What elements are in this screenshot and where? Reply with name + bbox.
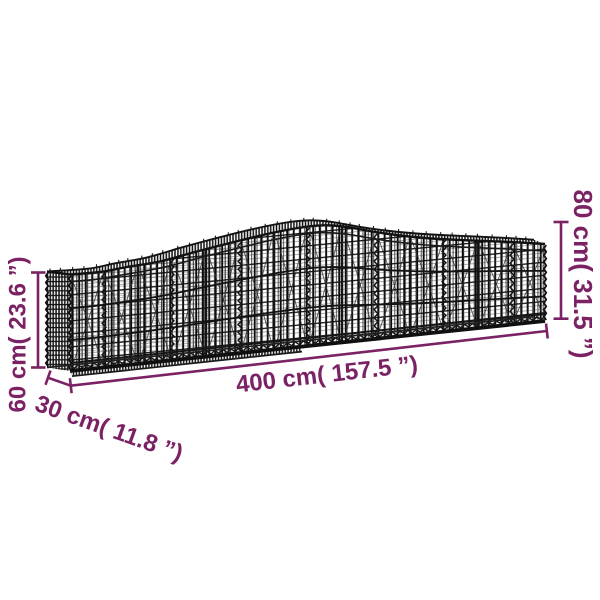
svg-text:80 cm( 31.5 ”): 80 cm( 31.5 ”) (568, 190, 598, 359)
svg-text:60 cm( 23.6 ”): 60 cm( 23.6 ”) (5, 256, 32, 412)
